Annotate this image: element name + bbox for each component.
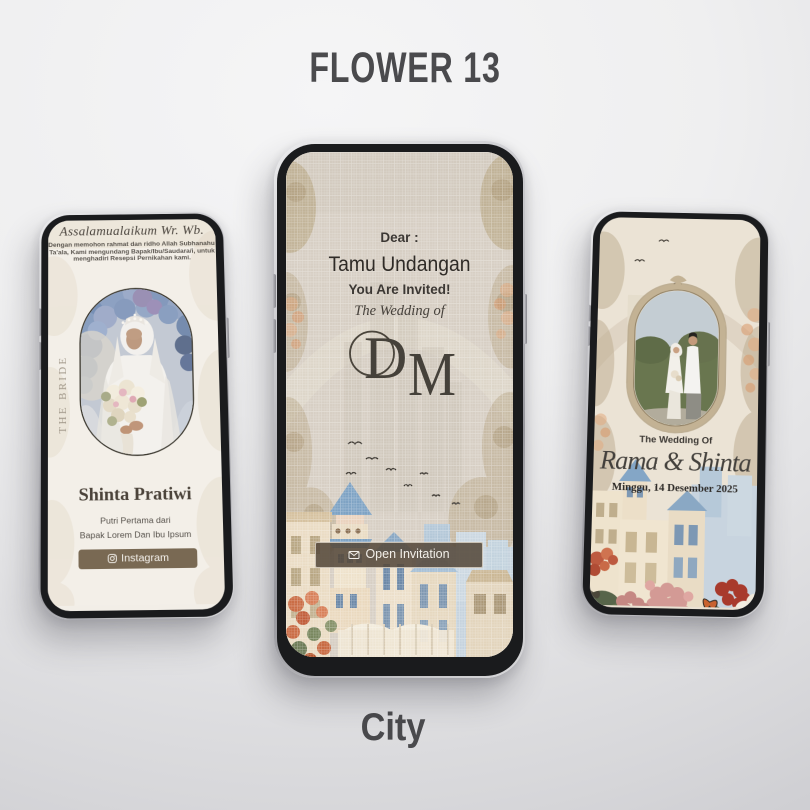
svg-text:D: D	[364, 325, 407, 391]
svg-text:M: M	[408, 341, 456, 409]
